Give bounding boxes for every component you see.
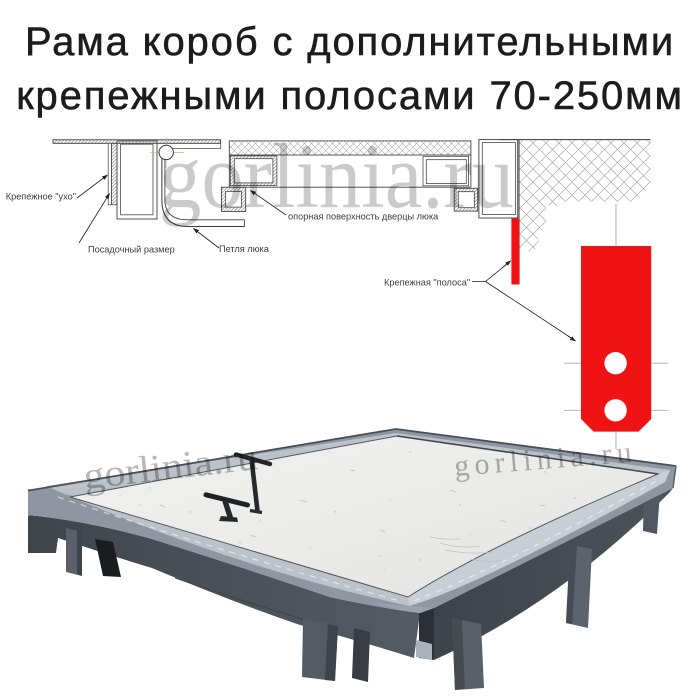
svg-text:Крепежная "полоса": Крепежная "полоса"	[384, 278, 470, 288]
svg-text:Посадочный размер: Посадочный размер	[88, 245, 175, 255]
svg-text:gorlinia.ru: gorlinia.ru	[159, 125, 514, 227]
svg-text:Крепежное "ухо": Крепежное "ухо"	[6, 192, 76, 202]
svg-text:Петля люка: Петля люка	[219, 244, 270, 254]
